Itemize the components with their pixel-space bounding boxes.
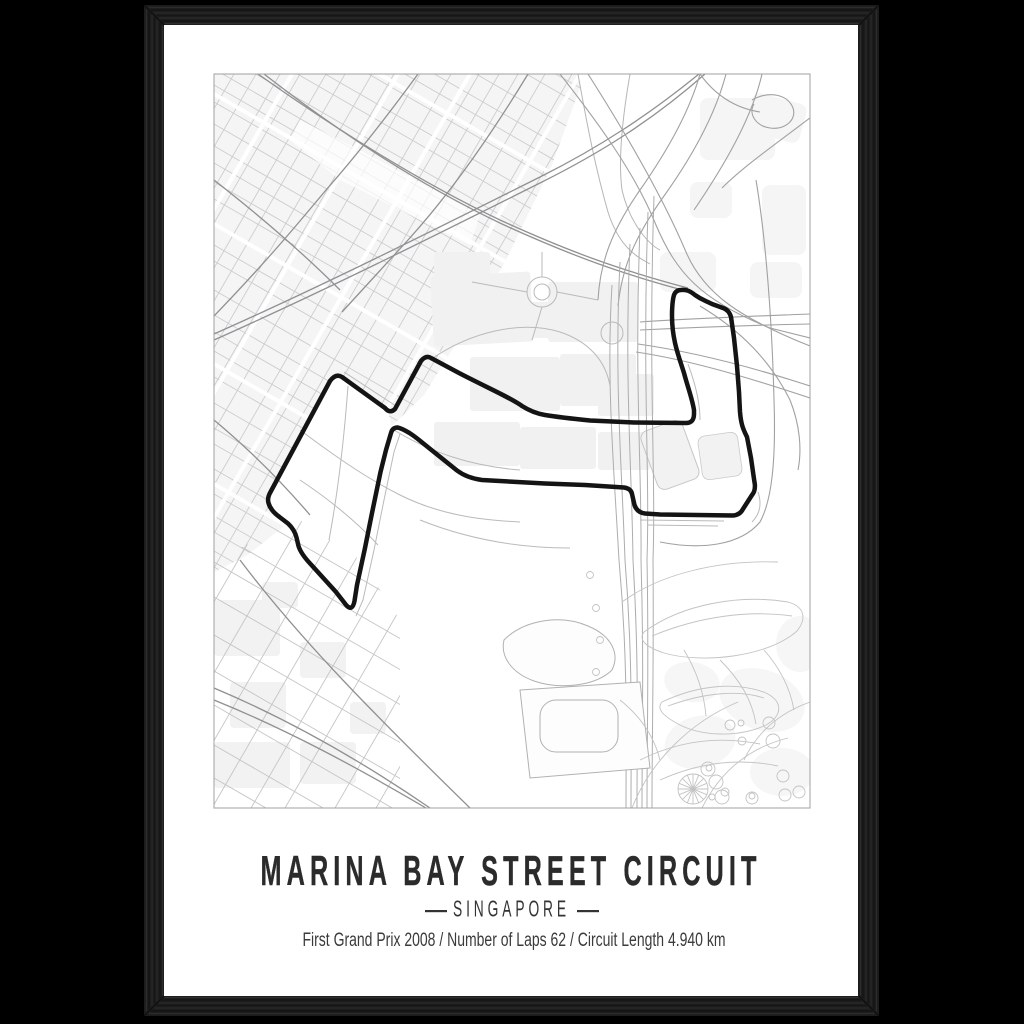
svg-text:First Grand Prix 2008 / Number: First Grand Prix 2008 / Number of Laps 6… (303, 930, 726, 951)
svg-text:SINGAPORE: SINGAPORE (453, 896, 570, 922)
svg-text:MARINA BAY STREET CIRCUIT: MARINA BAY STREET CIRCUIT (261, 847, 762, 894)
